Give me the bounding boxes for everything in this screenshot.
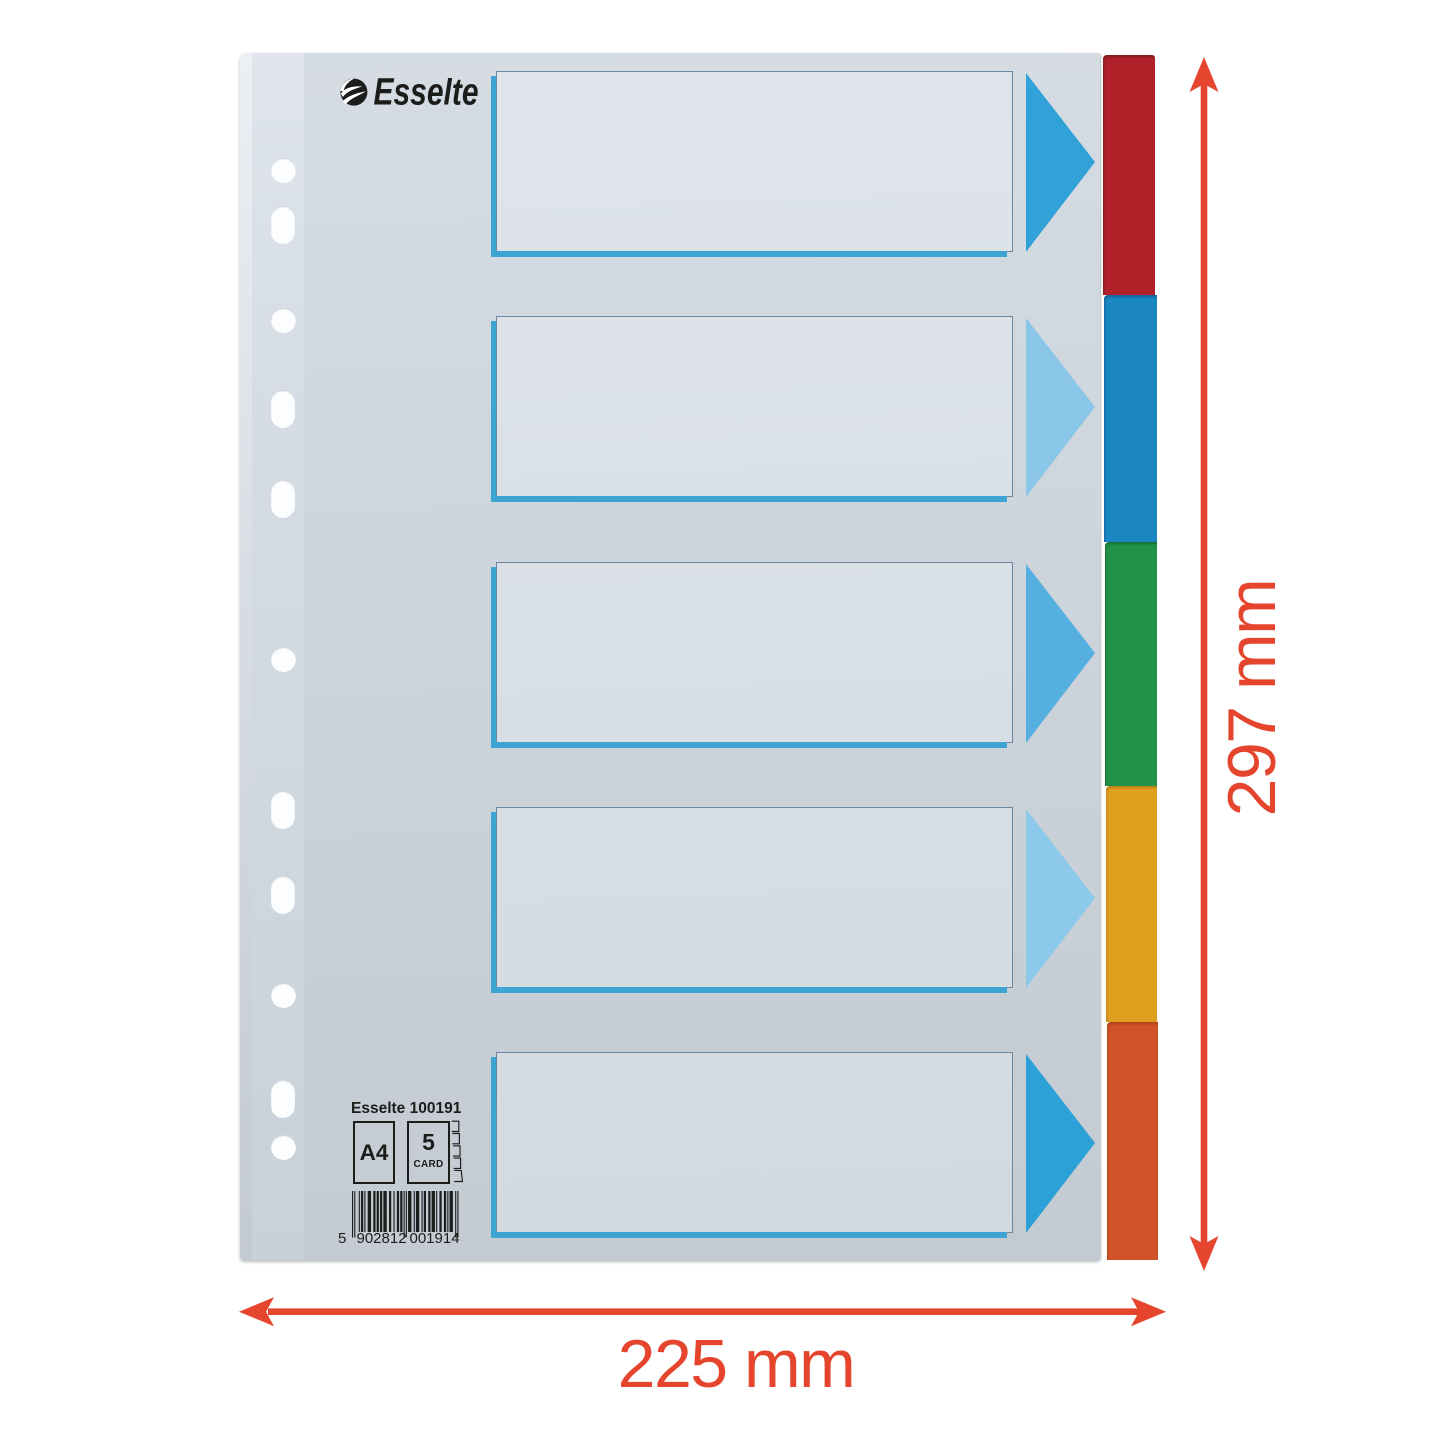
svg-text:Esselte: Esselte [374, 78, 479, 112]
